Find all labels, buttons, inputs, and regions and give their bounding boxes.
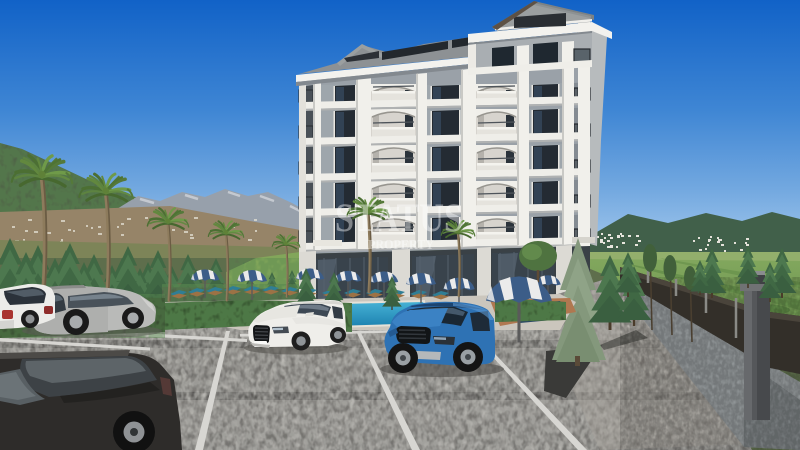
svg-text:STATUS: STATUS [335,195,463,240]
svg-text:PROPERTY: PROPERTY [368,238,434,253]
